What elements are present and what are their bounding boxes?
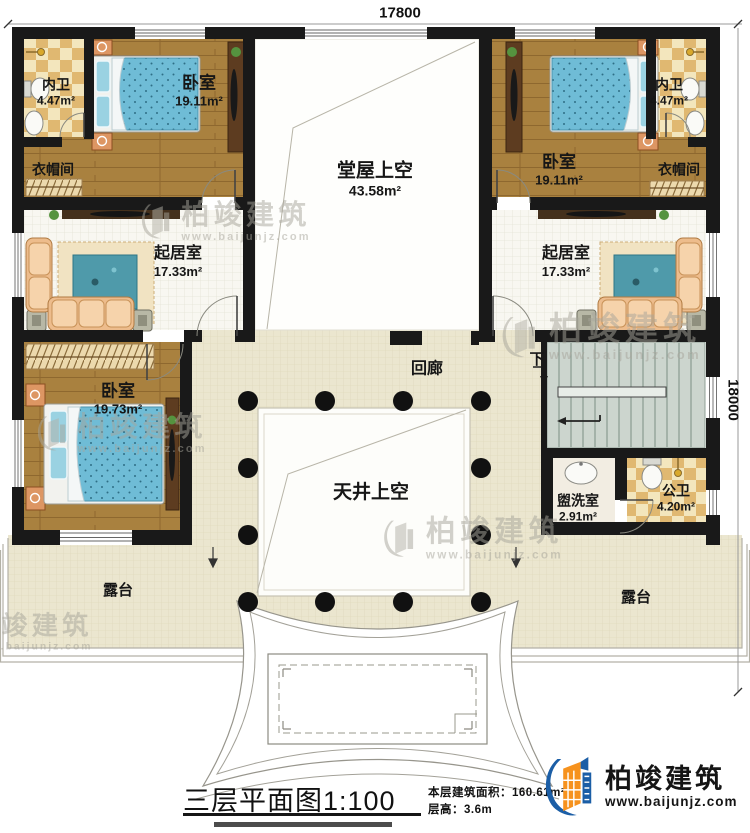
room-label-bedroom-bottom-left: 卧室19.73m² <box>94 381 142 416</box>
sofa-set-left <box>26 238 154 331</box>
room-label-bath-top-right: 内卫4.47m² <box>650 77 688 108</box>
title-underline-2 <box>214 822 392 827</box>
room-label-bath-top-left: 内卫4.47m² <box>37 77 75 108</box>
closet-top-left-rack <box>26 179 82 196</box>
room-label-courtyard-void: 天井上空 <box>333 482 409 504</box>
floor-height-text: 层高：3.6m <box>428 801 492 817</box>
gate-roof <box>196 601 559 799</box>
room-label-living-left: 起居室17.33m² <box>154 245 202 279</box>
brand-url: www.baijunjz.com <box>605 794 738 809</box>
room-label-bedroom-top-right: 卧室19.11m² <box>535 152 583 187</box>
wardrobe-bottom-left <box>26 344 154 369</box>
room-label-closet-top-right: 衣帽间 <box>658 162 700 179</box>
brand-name: 柏竣建筑 <box>605 765 738 793</box>
tv-cabinet-top-right <box>506 42 522 152</box>
tv-cabinet-bottom-left <box>166 398 179 510</box>
closet-top-right-rack <box>650 181 704 196</box>
room-label-terrace-left: 露台 <box>103 582 133 600</box>
room-label-corridor: 回廊 <box>411 361 443 380</box>
room-label-living-right: 起居室17.33m² <box>542 245 590 279</box>
room-label-public-toilet: 公卫4.20m² <box>657 483 695 514</box>
room-label-washroom: 盥洗室2.91m² <box>557 493 599 524</box>
dimension-top: 17800 <box>379 5 421 22</box>
floor-plan-page: 17800 18000 内卫4.47m² 卧室19.11m² 衣帽间 堂屋上空4… <box>0 0 750 833</box>
tv-console-living-left <box>49 210 180 220</box>
title-underline <box>183 813 421 816</box>
room-label-bedroom-top-left: 卧室19.11m² <box>175 73 223 108</box>
room-label-hall-void: 堂屋上空43.58m² <box>337 161 413 200</box>
room-label-closet-top-left: 衣帽间 <box>32 162 74 179</box>
tv-console-living-right <box>538 210 669 220</box>
brand-logo: 柏竣建筑 www.baijunjz.com <box>540 752 738 822</box>
stairs-down-label: 下 <box>529 351 544 369</box>
tv-cabinet-top-left <box>228 42 244 152</box>
brand-logo-icon <box>540 752 598 822</box>
dimension-right: 18000 <box>725 379 742 421</box>
washroom-sink <box>565 462 597 484</box>
room-label-terrace-right: 露台 <box>621 589 651 607</box>
